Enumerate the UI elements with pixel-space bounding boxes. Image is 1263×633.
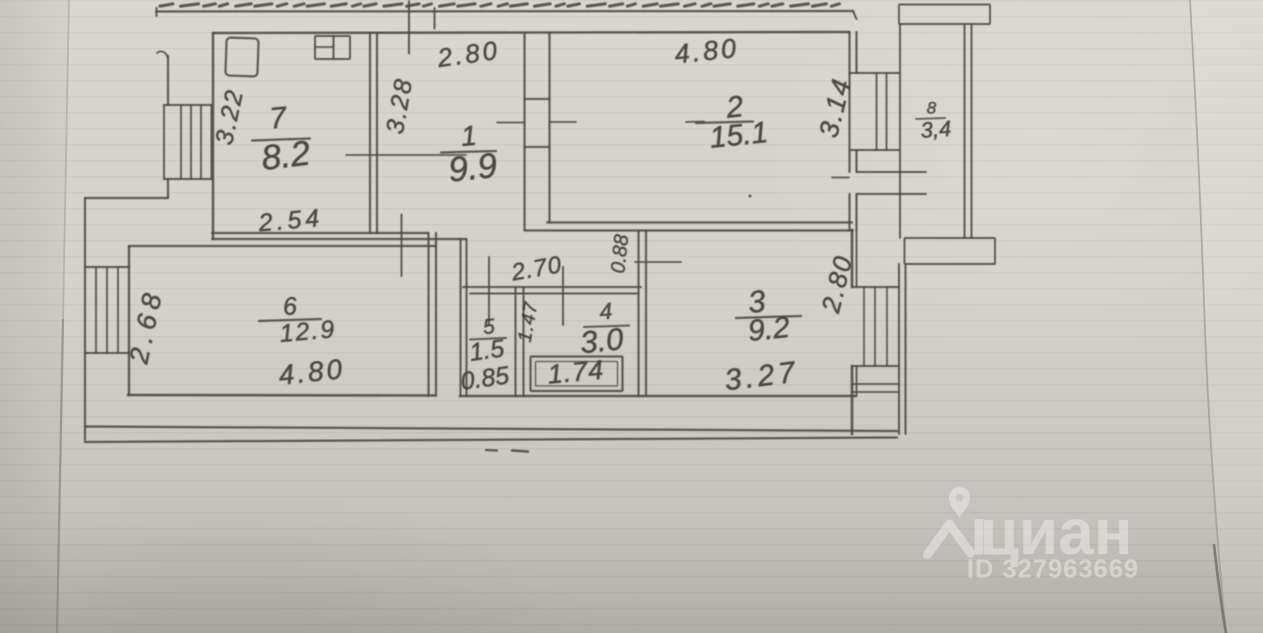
svg-text:12.9: 12.9 xyxy=(278,315,337,348)
svg-text:2.70: 2.70 xyxy=(508,251,564,287)
svg-text:4.80: 4.80 xyxy=(673,33,740,70)
svg-text:3.28: 3.28 xyxy=(381,75,418,136)
svg-text:2.80: 2.80 xyxy=(815,251,859,316)
svg-text:0.85: 0.85 xyxy=(459,361,511,396)
svg-text:9.2: 9.2 xyxy=(746,311,791,348)
svg-text:9.9: 9.9 xyxy=(447,146,499,190)
svg-text:4.80: 4.80 xyxy=(277,353,346,391)
svg-text:ID 327963669: ID 327963669 xyxy=(967,556,1139,584)
svg-text:1.74: 1.74 xyxy=(546,355,605,390)
svg-text:6: 6 xyxy=(282,292,298,321)
svg-text:2.54: 2.54 xyxy=(256,204,324,238)
svg-text:3.27: 3.27 xyxy=(723,356,801,398)
svg-text:0.88: 0.88 xyxy=(607,233,633,274)
svg-text:8.2: 8.2 xyxy=(259,133,312,178)
svg-text:2.80: 2.80 xyxy=(435,35,502,74)
svg-text:8: 8 xyxy=(927,98,937,117)
svg-text:7: 7 xyxy=(268,101,289,135)
svg-text:15.1: 15.1 xyxy=(708,116,770,155)
svg-text:3.22: 3.22 xyxy=(210,86,249,147)
svg-text:3,4: 3,4 xyxy=(920,116,952,143)
svg-text:1.47: 1.47 xyxy=(515,299,543,343)
svg-text:4: 4 xyxy=(598,298,613,325)
